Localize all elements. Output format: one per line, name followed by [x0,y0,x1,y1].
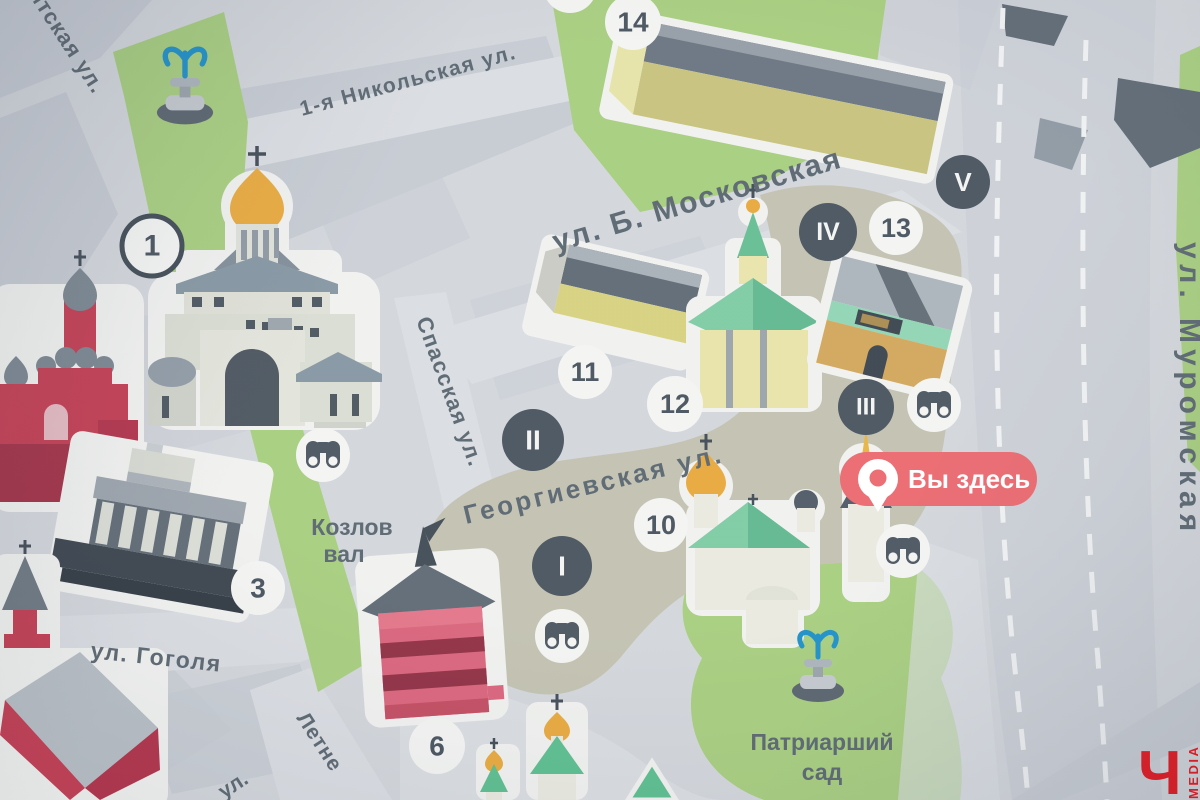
svg-text:сад: сад [802,759,843,785]
svg-text:14: 14 [617,7,649,38]
marker-roman-ii: II [502,409,564,471]
marker-roman-iii: III [838,379,894,435]
svg-text:V: V [954,167,972,197]
marker-13: 13 [869,201,923,255]
svg-text:II: II [525,425,541,456]
svg-text:13: 13 [881,213,911,243]
marker-12: 12 [647,376,703,432]
marker-10: 10 [634,498,688,552]
watermark-logo: Ч MEDIA [1138,739,1200,800]
city-map: итская ул. 1-я Никольская ул. ул. Б. Мос… [0,0,1200,800]
street-label-muromskaya: ул. Муромская [1173,242,1200,537]
map-photo: итская ул. 1-я Никольская ул. ул. Б. Мос… [0,0,1200,800]
svg-text:III: III [856,394,876,421]
svg-text:6: 6 [429,731,445,762]
binoculars-icon [876,524,930,578]
watermark-text: MEDIA [1186,745,1200,799]
marker-roman-iv: IV [799,203,857,261]
marker-6: 6 [409,718,465,774]
svg-text:11: 11 [571,357,600,387]
marker-1: 1 [122,216,182,276]
svg-text:1: 1 [144,230,161,263]
marker-roman-v: V [936,155,990,209]
svg-text:I: I [558,551,566,582]
binoculars-icon [296,428,350,482]
binoculars-icon [907,378,961,432]
svg-text:IV: IV [816,218,840,246]
marker-11: 11 [558,345,612,399]
svg-text:10: 10 [646,510,676,540]
watermark-letter: Ч [1138,739,1182,800]
svg-text:3: 3 [250,573,266,604]
you-are-here-label: Вы здесь [908,464,1030,494]
you-are-here-badge: Вы здесь [840,452,1037,512]
svg-text:вал: вал [323,541,364,567]
marker-roman-i: I [532,536,592,596]
binoculars-icon [535,609,589,663]
svg-text:12: 12 [660,389,690,419]
svg-text:Козлов: Козлов [311,514,392,540]
marker-3: 3 [231,561,285,615]
red-house-building [0,648,168,800]
svg-text:Патриарший: Патриарший [750,729,893,755]
